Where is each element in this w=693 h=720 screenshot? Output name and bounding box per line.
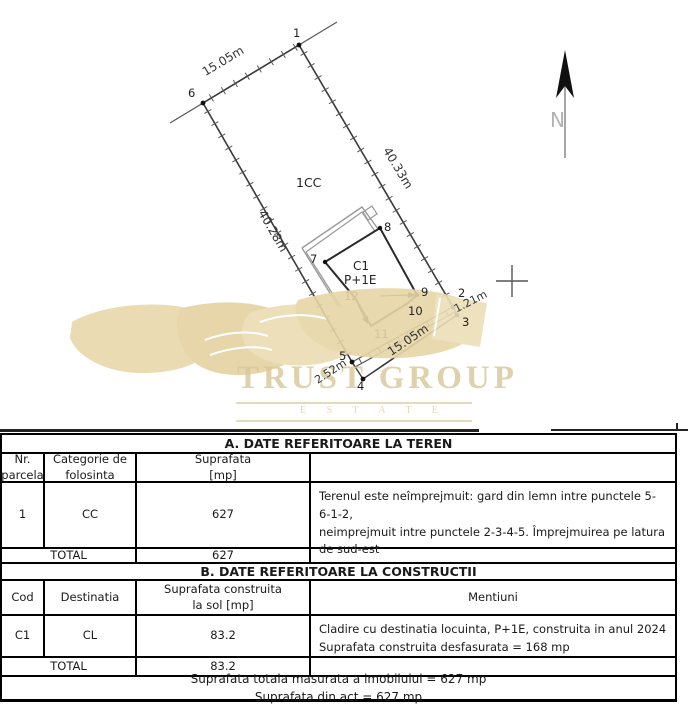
north-label: N [550, 110, 565, 130]
table-row-constructie: C1 CL 83.2 Cladire cu destinatia locuint… [2, 614, 675, 656]
header-nr-parcela: Nr. parcela [2, 454, 43, 481]
point-label-9: 9 [421, 287, 428, 299]
cell-destinatia: CL [43, 616, 135, 656]
cell-mentiuni-b: Cladire cu destinatia locuinta, P+1E, co… [309, 616, 675, 656]
point-label-1: 1 [293, 28, 300, 40]
cell-suprafata-a: 627 [135, 483, 309, 547]
total-label-b: TOTAL [2, 658, 135, 675]
header-suprafata-b: Suprafata construita la sol [mp] [135, 581, 309, 614]
section-b-title: B. DATE REFERITOARE LA CONSTRUCTII [2, 562, 675, 579]
point-label-7: 7 [310, 254, 317, 266]
header-mentiuni-b: Mentiuni [309, 581, 675, 614]
watermark-brand: TRUST GROUP [237, 360, 467, 397]
total-value-a: 627 [135, 549, 309, 562]
section-a-title-text: A. DATE REFERITOARE LA TEREN [225, 436, 453, 451]
point-label-10: 10 [408, 306, 423, 318]
header-mentiuni-a [309, 454, 675, 481]
watermark-rule-bottom [236, 420, 472, 422]
footer-line-2: Suprafata din act = 627 mp [255, 688, 422, 706]
section-b-title-text: B. DATE REFERITOARE LA CONSTRUCTII [200, 564, 476, 579]
section-b-header-row: Cod Destinatia Suprafata construita la s… [2, 579, 675, 614]
cell-nr: 1 [2, 483, 43, 547]
point-label-8: 8 [384, 222, 391, 234]
watermark-subtitle: E S T A T E [300, 405, 447, 416]
section-a-header-row: Nr. parcela Categorie de folosinta Supra… [2, 452, 675, 481]
cell-cod: C1 [2, 616, 43, 656]
parcel-label: 1CC [296, 177, 321, 190]
header-categorie: Categorie de folosinta [43, 454, 135, 481]
table-a-total-row: TOTAL 627 [2, 547, 675, 562]
total-empty-a [309, 549, 675, 562]
site-plan: 11 12 TRUST GROUP E S T A T E 1CC C1 P+1… [0, 0, 693, 433]
point-label-4: 4 [357, 381, 364, 393]
table-row-teren: 1 CC 627 Terenul este neîmprejmuit: gard… [2, 481, 675, 547]
building-code-label: C1 [353, 260, 369, 272]
section-a-title: A. DATE REFERITOARE LA TEREN [2, 435, 675, 452]
point-label-3: 3 [462, 317, 469, 329]
cell-mentiuni-a: Terenul este neîmprejmuit: gard din lemn… [309, 483, 675, 547]
data-tables: A. DATE REFERITOARE LA TEREN Nr. parcela… [0, 433, 677, 702]
cell-categorie: CC [43, 483, 135, 547]
total-label-a: TOTAL [2, 549, 135, 562]
cell-suprafata-b: 83.2 [135, 616, 309, 656]
header-suprafata-a: Suprafata [mp] [135, 454, 309, 481]
cadastral-sheet: 11 12 TRUST GROUP E S T A T E 1CC C1 P+1… [0, 0, 693, 720]
footer-summary: Suprafata totala masurata a imobilului =… [2, 675, 675, 700]
watermark-rule-top [236, 402, 472, 404]
building-regime-label: P+1E [344, 274, 377, 286]
point-label-6: 6 [188, 88, 195, 100]
header-destinatia: Destinatia [43, 581, 135, 614]
footer-line-1: Suprafata totala masurata a imobilului =… [191, 670, 487, 688]
header-cod: Cod [2, 581, 43, 614]
